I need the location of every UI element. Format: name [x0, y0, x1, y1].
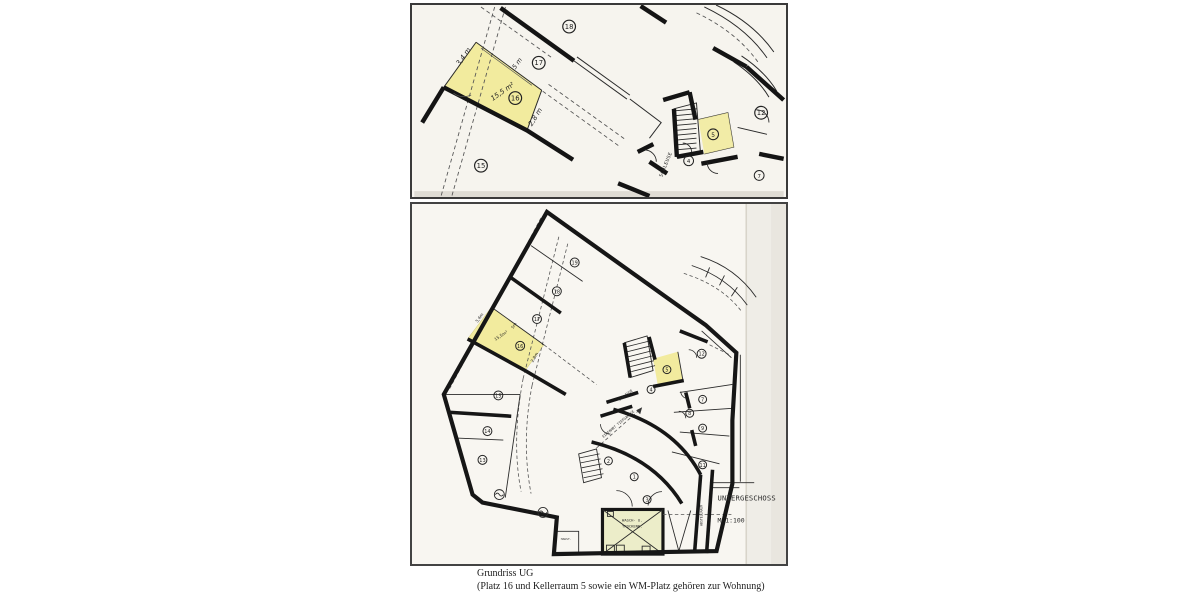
paper-right-edge — [771, 204, 786, 564]
abstellraum-label: ABSTELLRAUM — [700, 505, 704, 526]
scale-label: M 1:100 — [718, 516, 745, 524]
svg-text:1: 1 — [633, 475, 636, 481]
svg-text:18: 18 — [565, 23, 574, 31]
svg-text:7: 7 — [757, 174, 760, 180]
caption-line-1: Grundriss UG — [477, 568, 765, 581]
caption: Grundriss UG (Platz 16 und Kellerraum 5 … — [477, 568, 765, 593]
svg-text:4: 4 — [687, 159, 691, 165]
svg-text:14: 14 — [484, 429, 490, 435]
floor-title: UNTERGESCHOSS — [718, 494, 776, 503]
svg-text:13: 13 — [479, 458, 485, 464]
caption-line-2: (Platz 16 und Kellerraum 5 sowie ein WM-… — [477, 581, 765, 594]
svg-text:5: 5 — [665, 368, 668, 374]
svg-text:5: 5 — [711, 133, 715, 139]
svg-text:12: 12 — [757, 109, 766, 117]
svg-text:3: 3 — [646, 498, 649, 504]
svg-text:17: 17 — [534, 59, 543, 67]
svg-text:7: 7 — [701, 397, 704, 403]
svg-text:18: 18 — [554, 289, 560, 295]
washroom-label-line2: TROCKENR. — [622, 524, 642, 528]
svg-text:8: 8 — [688, 411, 691, 417]
svg-text:15: 15 — [477, 162, 486, 170]
washroom-label-line1: WASCH- U. — [622, 518, 642, 522]
svg-text:2: 2 — [607, 459, 610, 465]
svg-text:16: 16 — [517, 344, 523, 350]
photo-edge-shadow — [414, 191, 783, 197]
svg-text:19: 19 — [572, 260, 578, 266]
svg-text:12: 12 — [698, 352, 704, 358]
svg-text:17: 17 — [534, 317, 540, 323]
plan-crop-image: 3,4 m 5 m 15,5 m² 2,8 m SCHLEUSE 18 17 1… — [410, 3, 788, 199]
svg-text:11: 11 — [699, 463, 705, 469]
plan-full-image: 3,4m 5m 15,5m² 2,8m SCHLEUSE EINFAHRT TI… — [410, 202, 788, 566]
cellar-room-5-highlight — [698, 113, 733, 154]
svg-text:16: 16 — [511, 95, 520, 103]
svg-text:9: 9 — [701, 426, 704, 432]
room-label-11: 11 — [699, 461, 707, 469]
svg-text:15: 15 — [495, 393, 501, 399]
svg-text:4: 4 — [649, 387, 652, 393]
haust-label: HAUST. — [561, 537, 572, 541]
paper-background — [412, 204, 786, 564]
